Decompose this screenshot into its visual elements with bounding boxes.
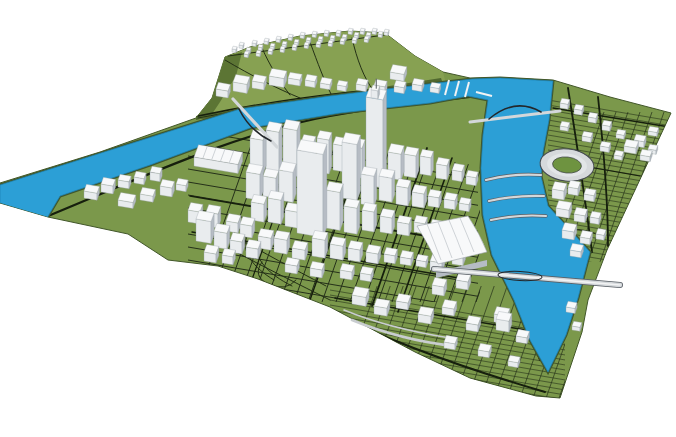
city-3d-scene[interactable] [0, 0, 676, 437]
scene-background [0, 0, 676, 437]
city-model-viewport[interactable] [0, 0, 676, 437]
